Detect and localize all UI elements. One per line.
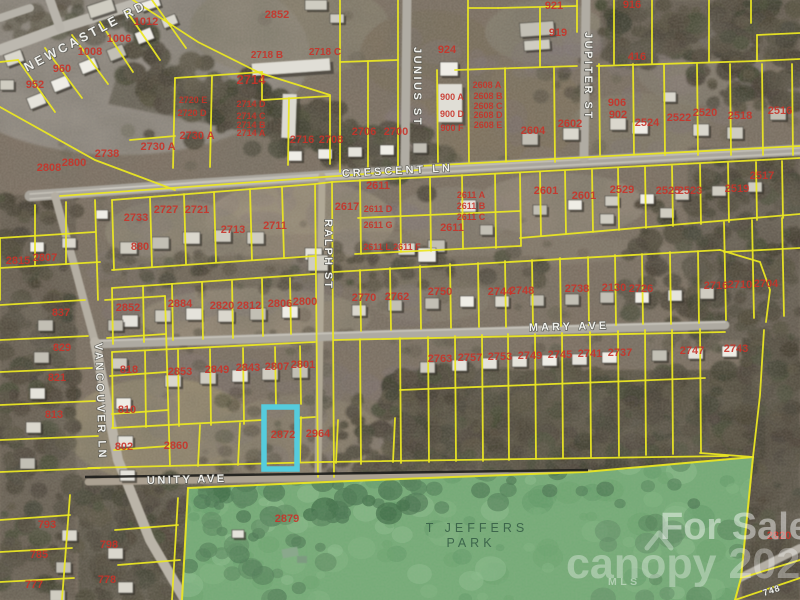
svg-text:921: 921	[545, 0, 563, 12]
svg-text:2611 G: 2611 G	[363, 220, 392, 230]
svg-text:777: 777	[25, 579, 43, 591]
svg-text:2713: 2713	[221, 224, 245, 236]
svg-text:2516: 2516	[768, 105, 792, 117]
svg-text:2524: 2524	[635, 117, 660, 129]
svg-text:2747: 2747	[680, 345, 704, 357]
svg-text:813: 813	[45, 409, 63, 421]
svg-text:2800: 2800	[293, 296, 317, 308]
svg-text:960: 960	[53, 63, 71, 75]
svg-text:2745: 2745	[548, 349, 572, 361]
svg-text:2714 A: 2714 A	[237, 128, 266, 138]
svg-text:2807: 2807	[265, 361, 289, 373]
svg-text:2849: 2849	[205, 364, 229, 376]
svg-text:2601: 2601	[534, 185, 558, 197]
svg-text:2611: 2611	[440, 222, 464, 234]
svg-text:2852: 2852	[265, 9, 289, 21]
svg-text:2738: 2738	[565, 283, 589, 295]
svg-text:2750: 2750	[428, 286, 452, 298]
svg-text:2611 A: 2611 A	[457, 190, 486, 200]
svg-text:900 F: 900 F	[440, 123, 464, 133]
svg-text:2753: 2753	[488, 351, 512, 363]
svg-text:2710: 2710	[728, 279, 752, 291]
svg-text:2730 A: 2730 A	[140, 141, 175, 153]
svg-text:2733: 2733	[124, 212, 148, 224]
svg-text:837: 837	[52, 307, 70, 319]
svg-text:2517: 2517	[750, 170, 774, 182]
svg-text:2518: 2518	[728, 110, 752, 122]
svg-text:916: 916	[623, 0, 641, 11]
svg-text:2529: 2529	[610, 184, 634, 196]
svg-text:2770: 2770	[352, 292, 376, 304]
svg-text:818: 818	[120, 364, 138, 376]
svg-text:2737: 2737	[608, 347, 632, 359]
svg-text:416: 416	[628, 51, 646, 63]
svg-text:2762: 2762	[385, 291, 409, 303]
svg-text:2807: 2807	[33, 252, 57, 264]
svg-text:952: 952	[26, 79, 44, 91]
svg-text:900 D: 900 D	[440, 109, 465, 119]
svg-text:2843: 2843	[236, 362, 260, 374]
svg-text:2852: 2852	[116, 302, 140, 314]
svg-text:2617: 2617	[335, 201, 359, 213]
svg-text:829: 829	[53, 342, 71, 354]
svg-text:2815: 2815	[6, 255, 30, 267]
svg-text:2720 E: 2720 E	[179, 95, 208, 105]
svg-text:2730 A: 2730 A	[179, 130, 214, 142]
svg-text:MLS: MLS	[608, 576, 641, 588]
svg-text:JUPITER ST: JUPITER ST	[582, 32, 594, 121]
svg-text:2801: 2801	[291, 359, 315, 371]
svg-text:2602: 2602	[558, 118, 582, 130]
svg-text:2872: 2872	[271, 429, 295, 441]
svg-text:2741: 2741	[578, 348, 602, 360]
svg-text:2608 D: 2608 D	[473, 110, 503, 120]
svg-text:2716: 2716	[290, 134, 314, 146]
svg-text:2711: 2711	[263, 220, 287, 232]
svg-text:2611 C: 2611 C	[457, 212, 486, 222]
svg-text:2820: 2820	[210, 300, 234, 312]
svg-text:802: 802	[115, 441, 133, 453]
svg-text:1008: 1008	[78, 46, 102, 58]
svg-text:2523: 2523	[678, 185, 702, 197]
svg-text:2763: 2763	[428, 353, 452, 365]
svg-text:2608 A: 2608 A	[473, 80, 502, 90]
svg-text:2800: 2800	[62, 157, 86, 169]
svg-text:2806: 2806	[268, 298, 292, 310]
svg-text:2704: 2704	[754, 278, 779, 290]
svg-text:2706: 2706	[352, 126, 376, 138]
svg-text:RALPH ST: RALPH ST	[322, 219, 334, 290]
svg-text:2721: 2721	[185, 204, 209, 216]
svg-text:2749: 2749	[518, 350, 542, 362]
svg-text:924: 924	[438, 44, 457, 56]
svg-text:2812: 2812	[237, 300, 261, 312]
svg-text:902: 902	[609, 109, 627, 121]
svg-text:2720 D: 2720 D	[177, 108, 207, 118]
svg-text:810: 810	[118, 404, 136, 416]
svg-text:2718 C: 2718 C	[309, 47, 341, 58]
svg-text:2520: 2520	[693, 107, 717, 119]
svg-text:UNITY AVE: UNITY AVE	[147, 473, 227, 487]
svg-text:778: 778	[98, 574, 116, 586]
svg-text:2525: 2525	[656, 185, 680, 197]
svg-text:2718 B: 2718 B	[251, 50, 283, 61]
svg-text:canopy 2023: canopy 2023	[566, 540, 800, 588]
svg-text:1012: 1012	[134, 16, 158, 28]
svg-text:2727: 2727	[154, 204, 178, 216]
svg-text:2611 B: 2611 B	[457, 201, 486, 211]
svg-text:2519: 2519	[725, 183, 749, 195]
svg-text:MARY AVE: MARY AVE	[529, 320, 610, 334]
svg-text:793: 793	[38, 519, 56, 531]
svg-text:2860: 2860	[164, 440, 188, 452]
svg-text:2522: 2522	[667, 112, 691, 124]
svg-text:2743: 2743	[724, 343, 748, 355]
svg-text:2611 D: 2611 D	[364, 204, 393, 214]
svg-text:880: 880	[131, 241, 149, 253]
svg-text:1006: 1006	[107, 33, 131, 45]
svg-text:2738: 2738	[95, 148, 119, 160]
svg-text:2716: 2716	[704, 280, 728, 292]
svg-text:2608 E: 2608 E	[474, 120, 503, 130]
svg-text:2611: 2611	[366, 180, 390, 192]
svg-text:2714 D: 2714 D	[236, 99, 266, 109]
svg-text:2757: 2757	[458, 352, 482, 364]
svg-text:919: 919	[549, 27, 567, 39]
svg-text:2726: 2726	[629, 283, 653, 295]
svg-text:2700: 2700	[384, 126, 408, 138]
svg-text:2964: 2964	[306, 428, 331, 440]
svg-text:798: 798	[100, 539, 118, 551]
svg-text:900 A: 900 A	[440, 92, 464, 102]
svg-text:821: 821	[48, 372, 66, 384]
svg-text:2714: 2714	[237, 72, 267, 87]
svg-text:2884: 2884	[168, 298, 193, 310]
svg-text:2601: 2601	[572, 190, 596, 202]
svg-text:2708: 2708	[319, 134, 343, 146]
svg-text:2808: 2808	[37, 162, 61, 174]
svg-text:906: 906	[608, 97, 626, 109]
svg-text:2611 L 2611 F: 2611 L 2611 F	[363, 242, 421, 252]
svg-text:2604: 2604	[521, 125, 546, 137]
svg-text:2879: 2879	[275, 513, 299, 525]
svg-text:JUNIUS ST: JUNIUS ST	[411, 47, 423, 127]
svg-text:2130: 2130	[602, 282, 626, 294]
svg-text:2608 B: 2608 B	[473, 91, 503, 101]
svg-text:2853: 2853	[168, 366, 192, 378]
svg-text:785: 785	[30, 549, 48, 561]
svg-text:2748: 2748	[510, 285, 534, 297]
svg-text:PARK: PARK	[446, 536, 495, 550]
svg-text:T JEFFERS: T JEFFERS	[426, 521, 528, 535]
